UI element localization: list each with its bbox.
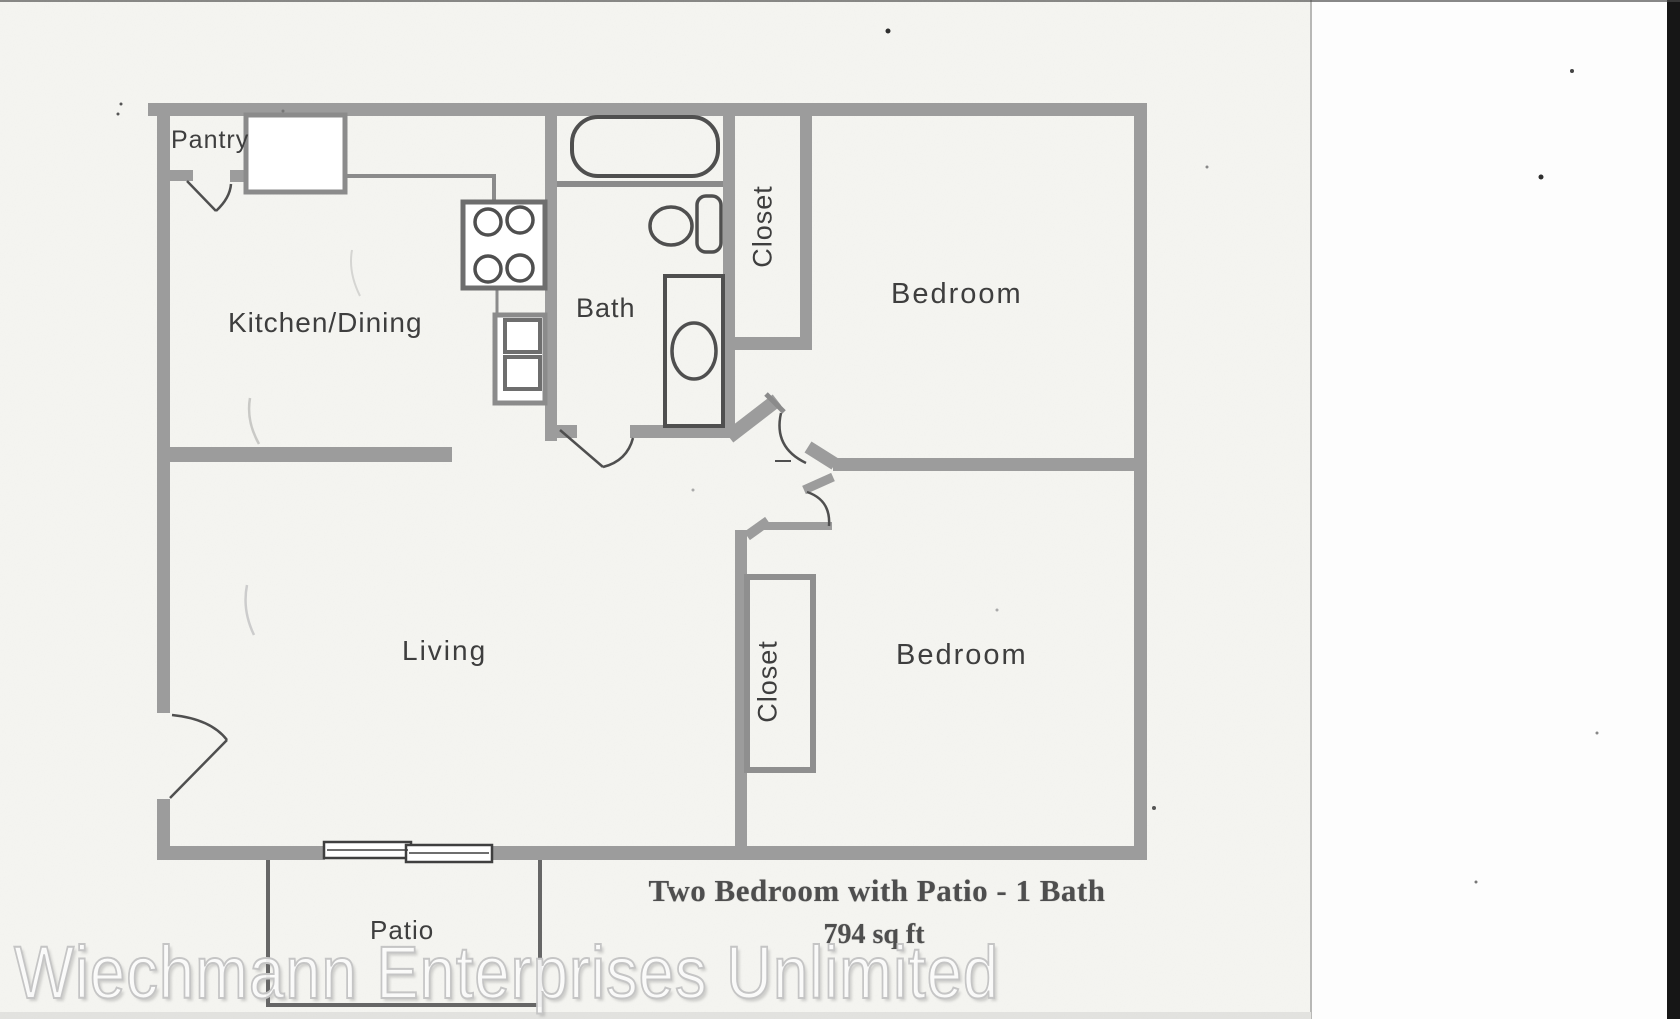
room-label-kitchen-dining: Kitchen/Dining (228, 307, 423, 339)
room-label-bedroom-top: Bedroom (891, 278, 1023, 311)
room-label-bath: Bath (576, 293, 636, 324)
room-label-closet-top: Closet (748, 167, 779, 287)
room-label-closet-bottom: Closet (753, 622, 784, 742)
scanned-page: Pantry Kitchen/Dining Bath Closet Bedroo… (0, 0, 1680, 1019)
room-label-pantry: Pantry (171, 126, 249, 155)
room-label-living: Living (402, 635, 487, 667)
room-label-bedroom-bottom: Bedroom (896, 639, 1028, 672)
stove-cooktop (463, 202, 545, 288)
sliding-patio-door (324, 842, 492, 862)
upper-cabinet (246, 115, 345, 192)
company-watermark: Wiechmann Enterprises Unlimited (14, 930, 999, 1015)
plan-title: Two Bedroom with Patio - 1 Bath (649, 873, 1106, 909)
kitchen-sink (495, 315, 545, 403)
floor-plan-drawing (0, 0, 1680, 1019)
